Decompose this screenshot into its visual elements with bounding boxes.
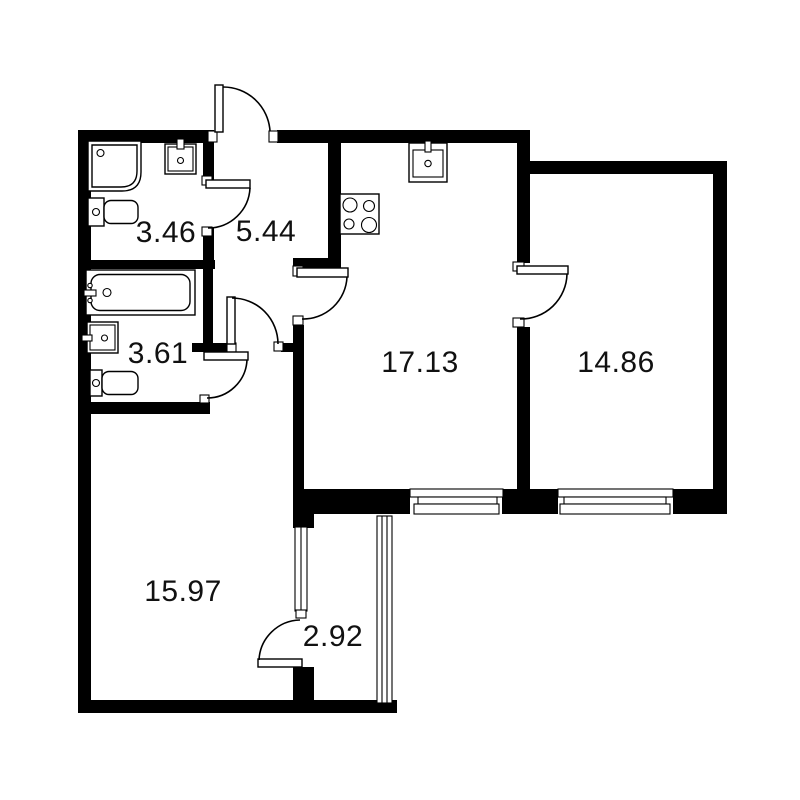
hallway-living-door	[227, 297, 278, 344]
jamb-kitchen-door-bottom	[293, 316, 303, 325]
bedroom-door	[517, 266, 568, 319]
jamb-bath361-bottom	[200, 395, 209, 403]
kitchen-window	[410, 489, 503, 514]
floor-plan: 3.46 5.44 3.61 17.13 14.86 15.97 2.92	[0, 0, 800, 800]
washbasin-346	[165, 139, 196, 174]
bathtub	[84, 270, 195, 315]
balcony-partition-window	[295, 527, 307, 611]
jamb-entrance-right	[269, 131, 278, 142]
balcony-door	[258, 620, 302, 667]
jamb-balcony-window-bottom	[296, 610, 306, 618]
plan-linework	[0, 0, 800, 800]
kitchen-sink	[409, 141, 447, 182]
kitchen-door	[297, 268, 348, 319]
stove	[340, 194, 379, 234]
toilet-361	[90, 370, 138, 396]
bedroom-window	[558, 489, 673, 514]
toilet-346	[88, 198, 138, 226]
bathroom-shower-door	[206, 180, 250, 228]
entrance-door	[215, 85, 270, 132]
shower-cabin	[88, 141, 141, 191]
balcony-glazing-right	[377, 516, 392, 703]
washbasin-361	[82, 322, 118, 353]
bathroom-tub-door	[204, 352, 248, 398]
